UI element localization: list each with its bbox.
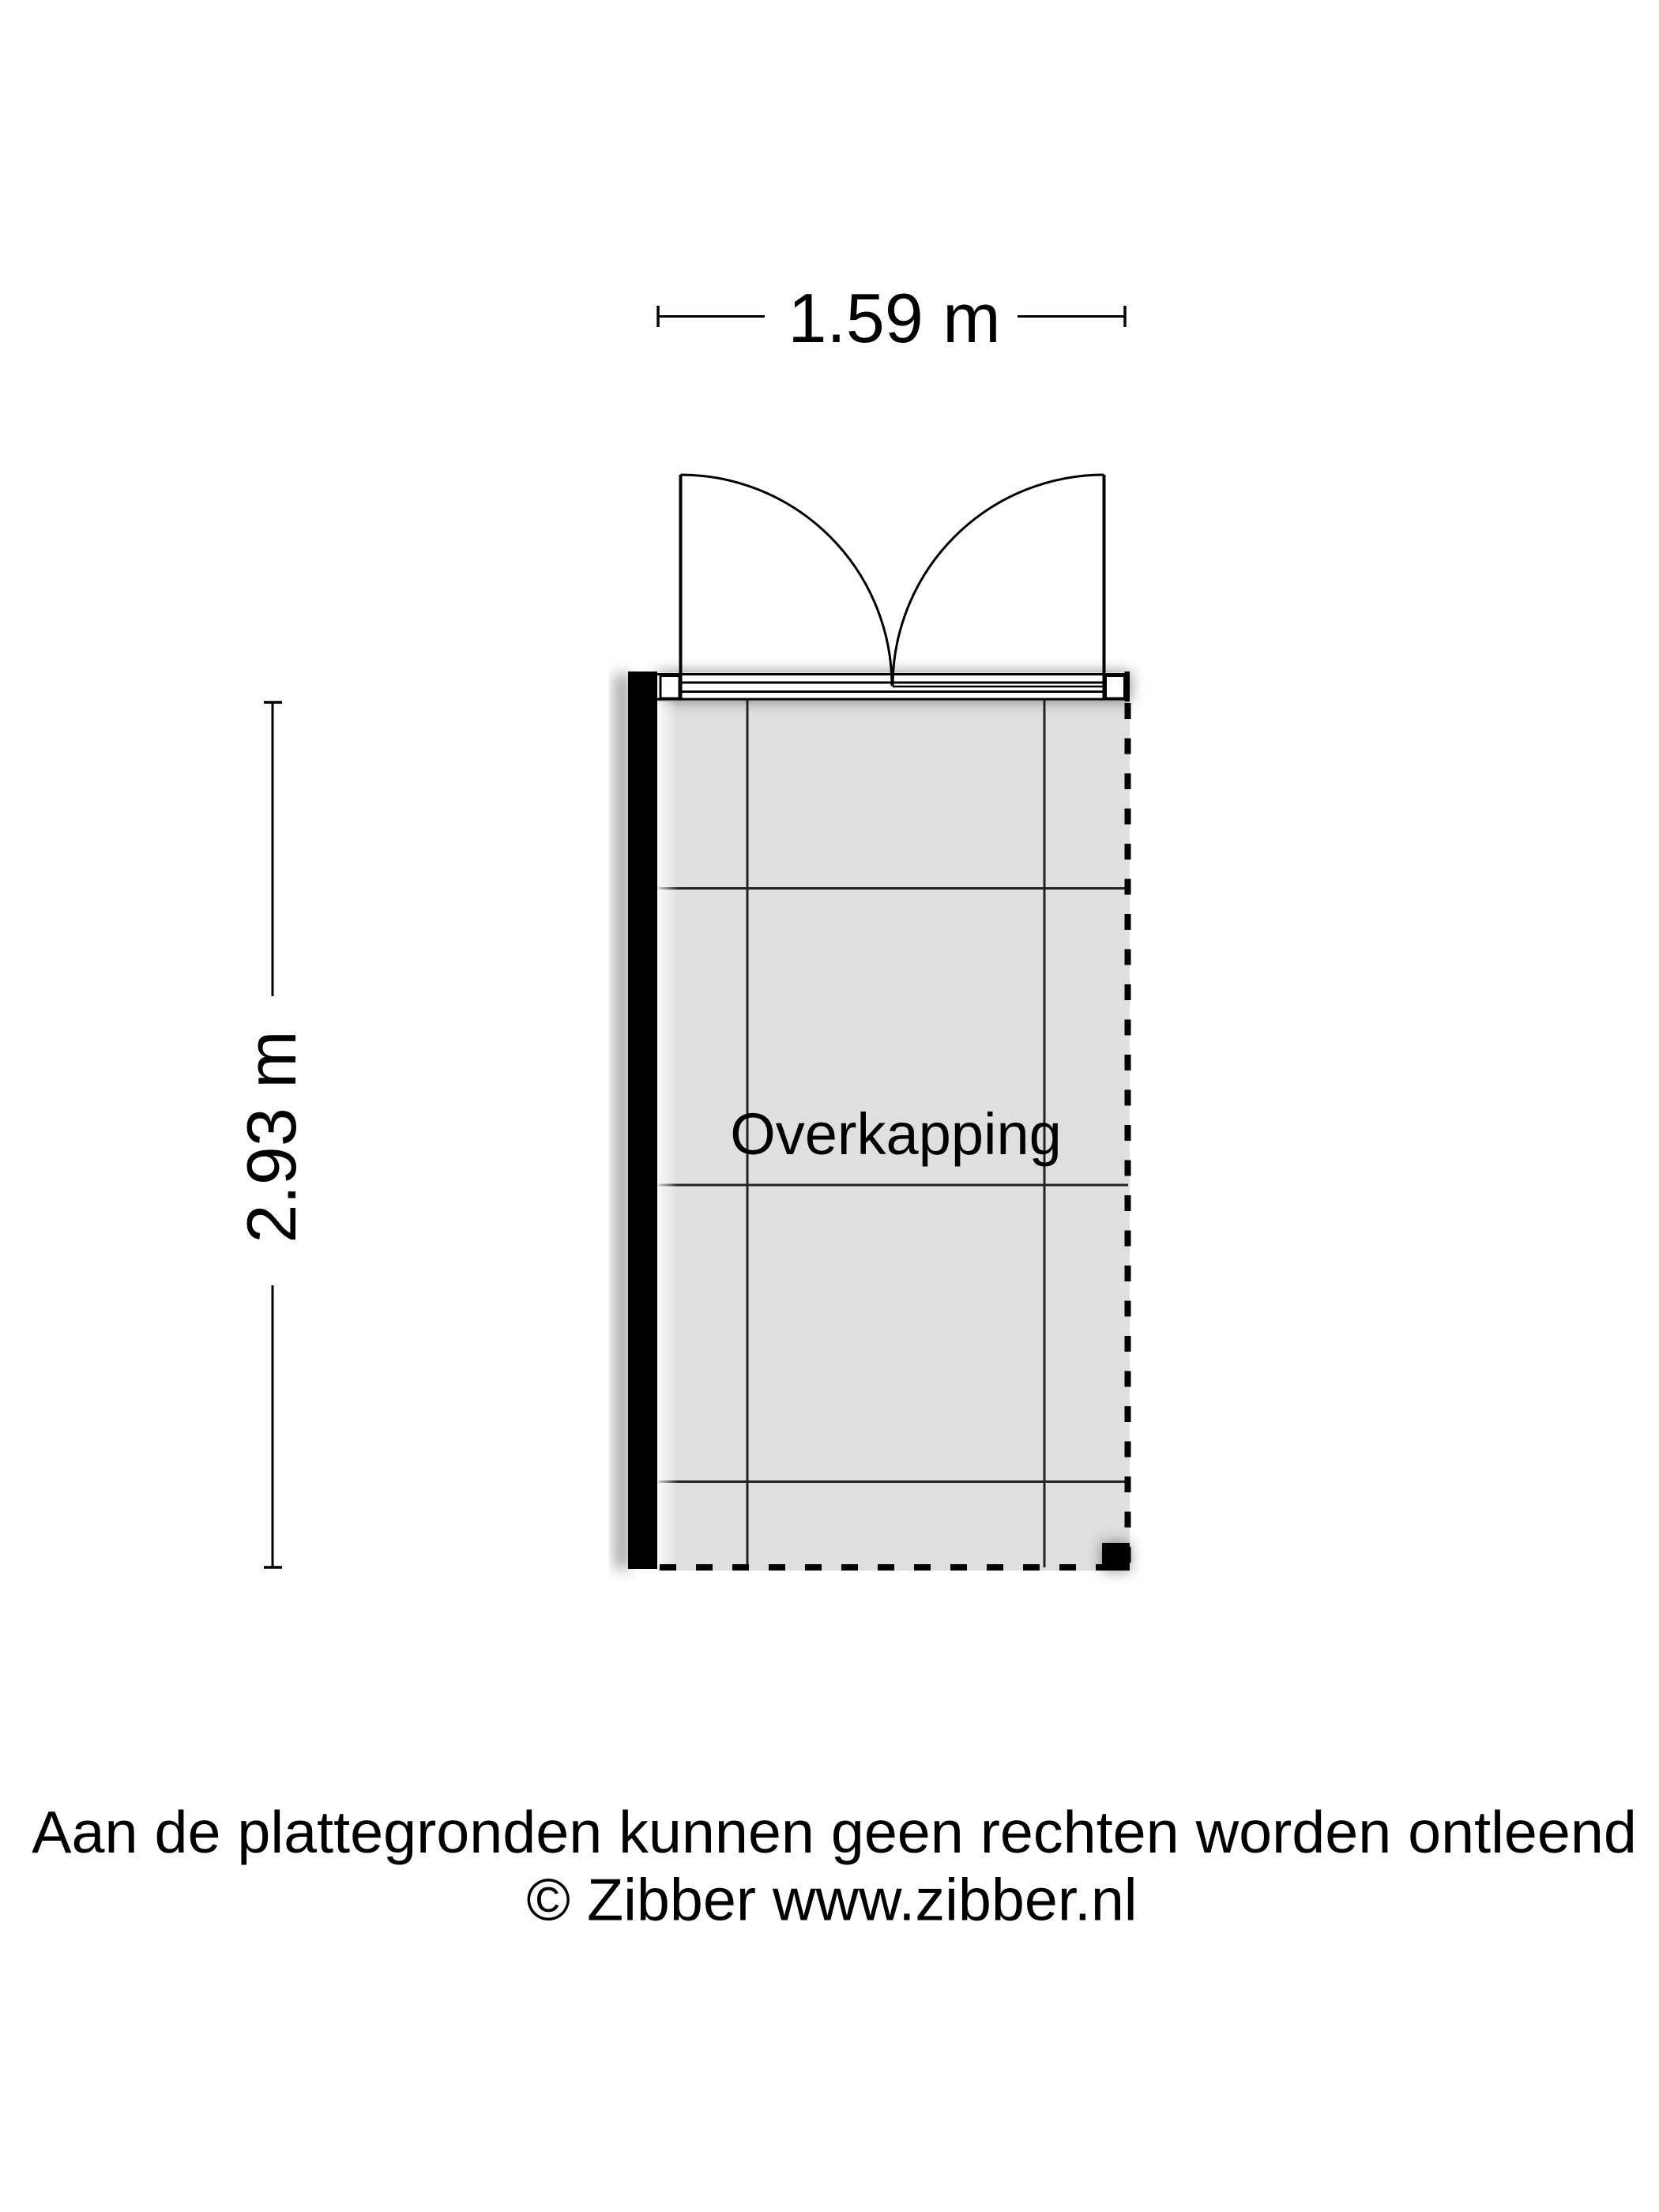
svg-text:1.59 m: 1.59 m <box>788 279 1000 357</box>
svg-text:2.93 m: 2.93 m <box>232 1030 310 1243</box>
svg-text:Aan de plattegronden kunnen ge: Aan de plattegronden kunnen geen rechten… <box>32 1799 1637 1865</box>
svg-text:Overkapping: Overkapping <box>730 1101 1062 1167</box>
svg-text:© Zibber www.zibber.nl: © Zibber www.zibber.nl <box>526 1867 1137 1933</box>
